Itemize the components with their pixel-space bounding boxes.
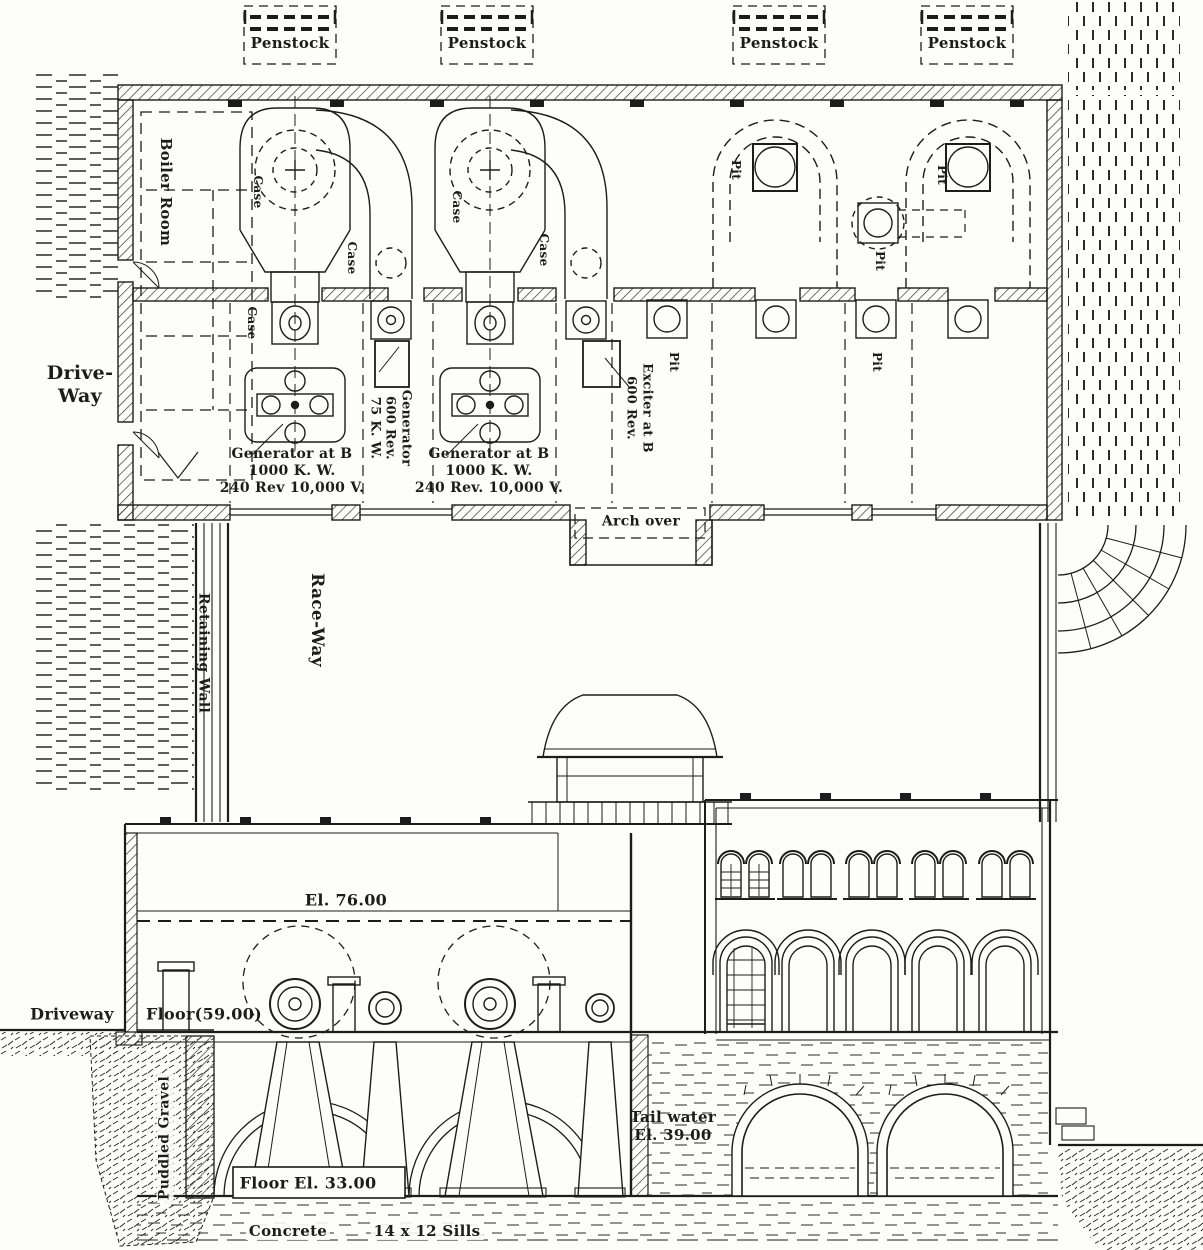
drawing-sheet: Penstock Penstock Penstock Penstock Boil… (0, 0, 1203, 1250)
el-76-label: El. 76.00 (305, 890, 387, 909)
drawing-canvas (0, 0, 1203, 1250)
small-generator-line-3: 75 K. W. (367, 390, 383, 467)
drive-way-label: Drive- Way (47, 362, 114, 408)
generator-right-label: Generator at B 1000 K. W. 240 Rev. 10,00… (415, 446, 563, 496)
pit-label-4: Pit (667, 352, 681, 372)
retaining-wall-label: Retaining Wall (195, 593, 212, 713)
generator-left-line-2: 1000 K. W. (220, 463, 365, 480)
race-way-label: Race-Way (307, 573, 327, 667)
pit-label-2: Pit (935, 165, 949, 185)
small-generator-label: Generator 600 Rev. 75 K. W. (367, 390, 414, 467)
exciter-label: Exciter at B 600 Rev. (623, 363, 654, 453)
boiler-room-label: Boiler Room (157, 138, 175, 246)
generator-right-line-2: 1000 K. W. (415, 463, 563, 480)
floor-33-label: Floor El. 33.00 (240, 1173, 377, 1192)
pit-label-1: Pit (729, 160, 743, 180)
small-generator-line-1: Generator (398, 390, 414, 467)
generator-right-line-3: 240 Rev. 10,000 V. (415, 479, 563, 496)
arch-over-label: Arch over (602, 514, 680, 531)
case-label-3: Case (450, 191, 464, 224)
penstock-label-2: Penstock (448, 34, 527, 52)
tail-water-line-1: Tail water (630, 1108, 716, 1126)
drive-way-line-2: Way (47, 385, 114, 408)
generator-left-line-3: 240 Rev 10,000 V. (220, 479, 365, 496)
exciter-line-1: Exciter at B (639, 363, 655, 453)
drive-way-line-1: Drive- (47, 362, 114, 385)
floor-59-label: Floor(59.00) (146, 1004, 262, 1023)
penstock-label-1: Penstock (251, 34, 330, 52)
pit-label-3: Pit (873, 251, 887, 271)
generator-right-line-1: Generator at B (415, 446, 563, 463)
case-label-2: Case (345, 242, 359, 275)
case-label-1: Case (251, 176, 265, 209)
case-label-4: Case (537, 234, 551, 267)
puddled-gravel-label: Puddled Gravel (157, 1073, 174, 1203)
sills-label: 14 x 12 Sills (371, 1222, 484, 1240)
exciter-line-2: 600 Rev. (623, 363, 639, 453)
case-label-5: Case (245, 307, 259, 340)
tail-water-line-2: El. 39.00 (630, 1126, 716, 1144)
small-generator-line-2: 600 Rev. (382, 390, 398, 467)
pit-label-5: Pit (870, 352, 884, 372)
penstock-label-4: Penstock (928, 34, 1007, 52)
generator-left-label: Generator at B 1000 K. W. 240 Rev 10,000… (220, 446, 365, 496)
generator-left-line-1: Generator at B (220, 446, 365, 463)
driveway-label: Driveway (30, 1004, 114, 1023)
concrete-label: Concrete (246, 1222, 330, 1240)
tail-water-label: Tail water El. 39.00 (630, 1108, 716, 1144)
penstock-label-3: Penstock (740, 34, 819, 52)
